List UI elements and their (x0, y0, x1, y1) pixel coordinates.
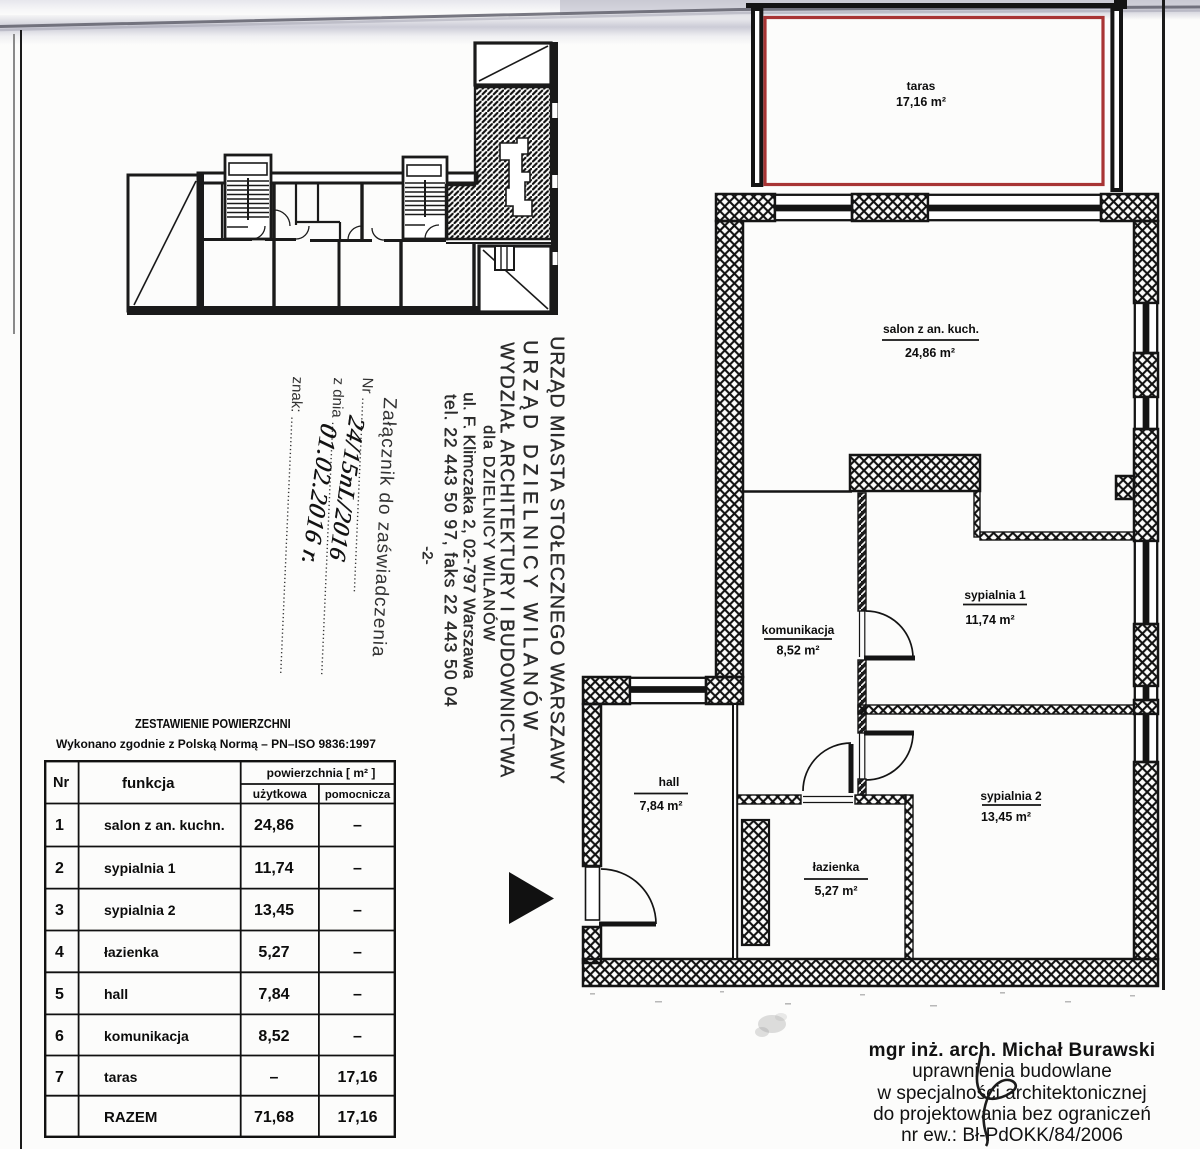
svg-text:3: 3 (55, 902, 64, 919)
svg-text:powierzchnia [ m² ]: powierzchnia [ m² ] (267, 766, 376, 780)
svg-text:komunikacja: komunikacja (762, 623, 835, 637)
svg-text:sypialnia 2: sypialnia 2 (104, 902, 176, 918)
svg-text:5,27 m²: 5,27 m² (814, 884, 857, 898)
svg-text:2: 2 (55, 860, 64, 877)
svg-text:Nr: Nr (53, 775, 69, 791)
svg-text:13,45: 13,45 (254, 902, 294, 919)
svg-text:łazienka: łazienka (104, 944, 159, 960)
svg-text:17,16: 17,16 (337, 1069, 377, 1086)
svg-text:sypialnia 2: sypialnia 2 (980, 789, 1042, 803)
svg-text:–: – (353, 944, 362, 961)
svg-text:taras: taras (104, 1069, 138, 1085)
svg-text:–: – (270, 1069, 279, 1086)
svg-text:71,68: 71,68 (254, 1109, 294, 1126)
svg-text:taras: taras (907, 79, 936, 93)
svg-text:8,52 m²: 8,52 m² (776, 644, 819, 658)
svg-text:–: – (353, 902, 362, 919)
svg-text:4: 4 (55, 944, 64, 961)
svg-text:5: 5 (55, 986, 64, 1003)
svg-text:8,52: 8,52 (258, 1028, 289, 1045)
svg-text:11,74: 11,74 (254, 860, 293, 877)
svg-text:komunikacja: komunikacja (104, 1028, 189, 1044)
svg-text:–: – (353, 860, 362, 877)
svg-text:1: 1 (55, 817, 64, 834)
svg-text:sypialnia 1: sypialnia 1 (964, 588, 1026, 602)
svg-text:7,84 m²: 7,84 m² (639, 799, 682, 813)
svg-text:hall: hall (104, 986, 128, 1002)
svg-text:17,16 m²: 17,16 m² (896, 95, 946, 109)
svg-text:salon z an. kuch.: salon z an. kuch. (883, 322, 979, 336)
svg-text:24,86 m²: 24,86 m² (905, 346, 955, 360)
svg-text:17,16: 17,16 (337, 1109, 377, 1126)
svg-text:sypialnia 1: sypialnia 1 (104, 860, 176, 876)
svg-text:funkcja: funkcja (122, 775, 175, 792)
svg-text:–: – (353, 1028, 362, 1045)
svg-text:RAZEM: RAZEM (104, 1109, 157, 1126)
svg-text:7: 7 (55, 1069, 64, 1086)
svg-text:pomocnicza: pomocnicza (325, 789, 391, 801)
svg-text:13,45 m²: 13,45 m² (981, 810, 1031, 824)
svg-text:7,84: 7,84 (258, 986, 289, 1003)
svg-text:–: – (353, 986, 362, 1003)
svg-text:6: 6 (55, 1028, 64, 1045)
svg-text:salon z an. kuchn.: salon z an. kuchn. (104, 817, 225, 833)
svg-text:łazienka: łazienka (813, 860, 860, 874)
svg-text:użytkowa: użytkowa (253, 787, 307, 801)
svg-text:11,74 m²: 11,74 m² (965, 613, 1014, 627)
svg-text:24,86: 24,86 (254, 817, 294, 834)
svg-text:–: – (353, 817, 362, 834)
svg-text:hall: hall (659, 775, 680, 789)
svg-text:5,27: 5,27 (258, 944, 289, 961)
